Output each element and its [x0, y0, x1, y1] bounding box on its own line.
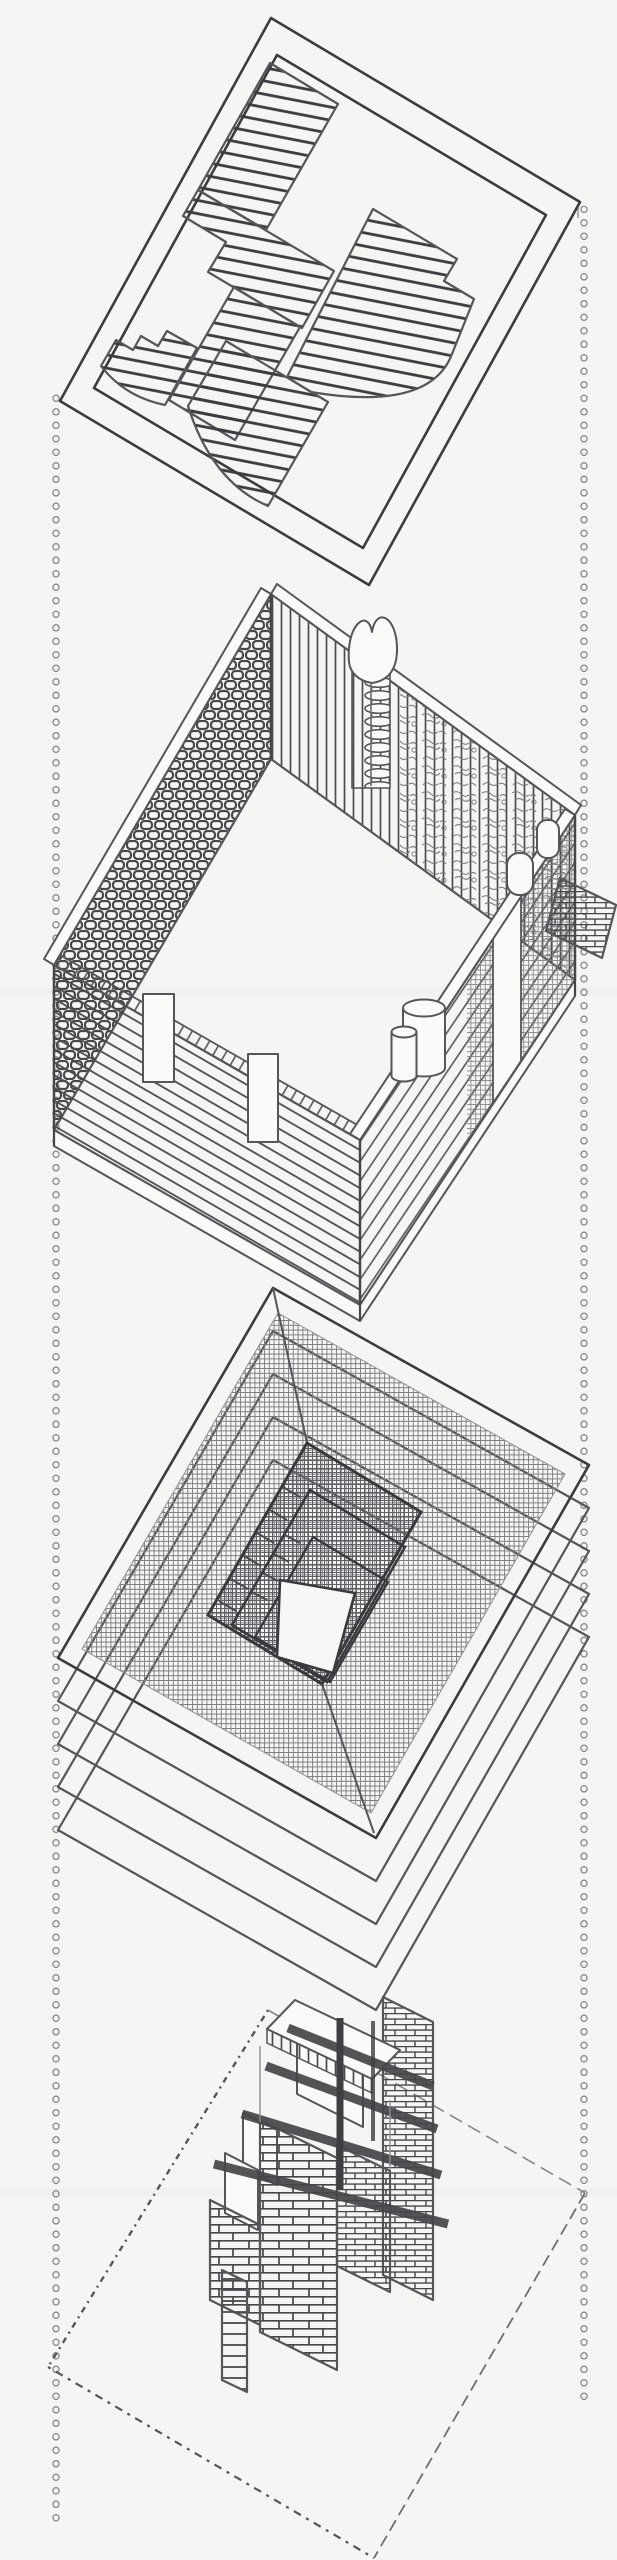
heart-chimney-top: [349, 617, 397, 683]
core-plank-fin: [222, 2270, 247, 2392]
chimney: [349, 617, 397, 788]
corner-pill-1: [537, 820, 559, 858]
cylinder-small: [392, 1027, 417, 1082]
core-pier-central: [260, 2120, 337, 2370]
pilaster-1: [143, 994, 174, 1082]
core-pier-right: [337, 2145, 390, 2292]
axonometric-drawing: [0, 0, 617, 2560]
tie-line-left: [44, 393, 60, 2523]
tie-line-right: [578, 204, 596, 2401]
sketch-page: [0, 0, 617, 2560]
corner-pill-2: [507, 853, 533, 895]
pilaster-2: [248, 1054, 278, 1142]
